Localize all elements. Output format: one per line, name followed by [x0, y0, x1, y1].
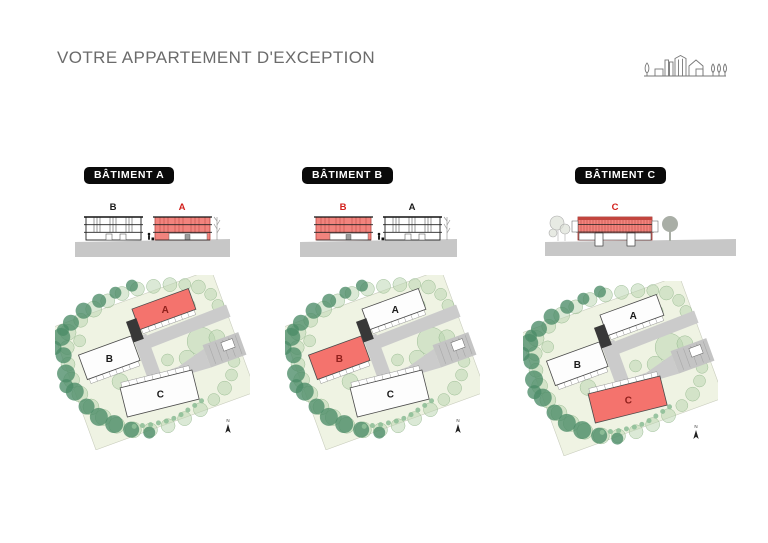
siteplan-batiment-b	[285, 275, 480, 450]
elevation-label-a: A	[179, 202, 186, 213]
person-icon	[378, 233, 384, 241]
badge-batiment-a: BÂTIMENT A	[84, 167, 174, 184]
village-skyline-logo-icon	[641, 50, 727, 84]
page: VOTRE APPARTEMENT D'EXCEPTION BÂTIMENT A	[0, 0, 768, 543]
elevation-batiment-a: B A	[65, 193, 235, 259]
elevation-label-a: A	[409, 202, 416, 213]
elevation-label-b: B	[340, 202, 347, 213]
section-batiment-b: BÂTIMENT B B A	[287, 165, 492, 495]
page-title: VOTRE APPARTEMENT D'EXCEPTION	[57, 48, 375, 68]
elevation-batiment-c: C	[543, 193, 738, 259]
ground	[75, 239, 230, 257]
tree-icon	[662, 216, 678, 241]
ground	[545, 239, 736, 256]
badge-batiment-c: BÂTIMENT C	[575, 167, 666, 184]
person-icon	[148, 233, 154, 241]
siteplan-batiment-c	[523, 281, 718, 456]
tree-icon	[214, 217, 220, 240]
elevation-label-c: C	[612, 202, 619, 213]
section-batiment-a: BÂTIMENT A B A	[57, 165, 262, 495]
elevation-label-b: B	[110, 202, 117, 213]
section-batiment-c: BÂTIMENT C	[543, 165, 748, 495]
elevation-batiment-b: B A	[295, 193, 465, 259]
siteplan-batiment-a	[55, 275, 250, 450]
ground	[300, 239, 457, 257]
tree-icon	[444, 217, 450, 240]
tree-icon	[549, 216, 570, 241]
badge-batiment-b: BÂTIMENT B	[302, 167, 393, 184]
